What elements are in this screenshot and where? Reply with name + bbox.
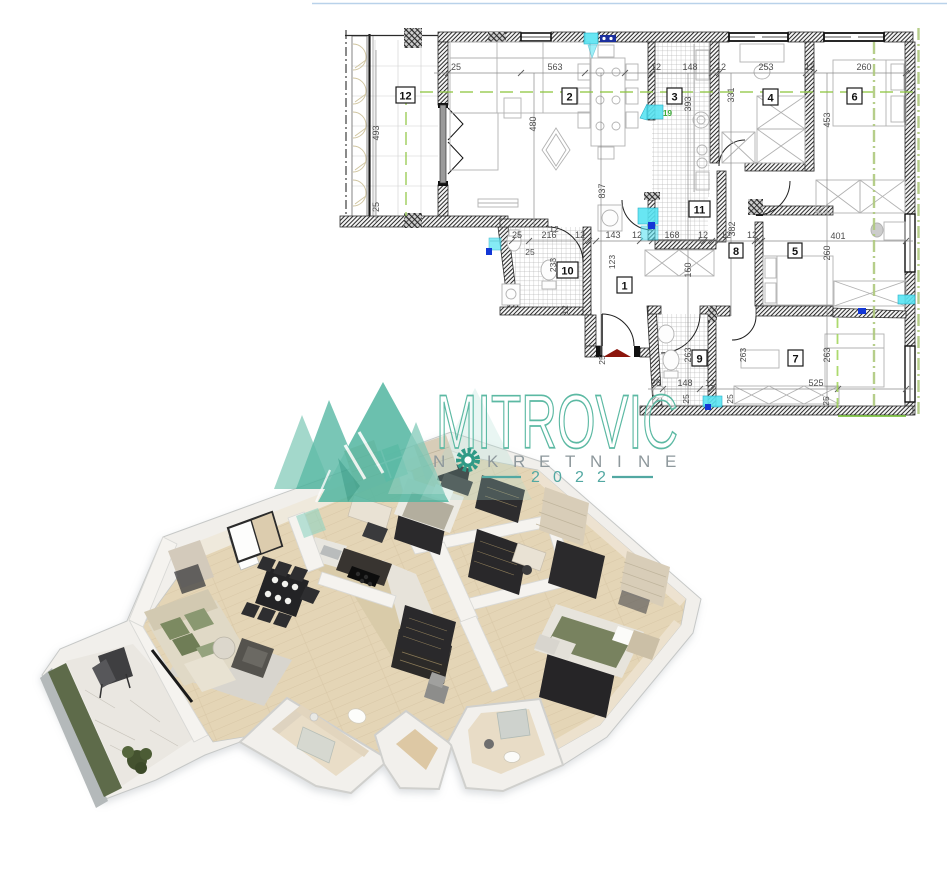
svg-text:I: I — [617, 452, 622, 471]
svg-text:K: K — [487, 452, 499, 471]
svg-text:2: 2 — [566, 92, 572, 104]
svg-text:393: 393 — [683, 96, 693, 111]
svg-text:5: 5 — [792, 246, 798, 258]
svg-text:10: 10 — [561, 266, 573, 278]
svg-text:12: 12 — [575, 230, 585, 240]
svg-text:253: 253 — [758, 62, 773, 72]
svg-text:260: 260 — [822, 245, 832, 260]
svg-text:7: 7 — [792, 354, 798, 366]
svg-text:168: 168 — [664, 230, 679, 240]
svg-text:N: N — [433, 452, 445, 471]
svg-text:401: 401 — [830, 231, 845, 241]
svg-text:E: E — [665, 452, 676, 471]
svg-text:2: 2 — [531, 469, 540, 486]
svg-text:148: 148 — [677, 378, 692, 388]
svg-text:T: T — [565, 452, 575, 471]
svg-text:12: 12 — [747, 230, 757, 240]
svg-text:260: 260 — [856, 62, 871, 72]
svg-text:12: 12 — [705, 378, 715, 388]
svg-text:25: 25 — [681, 394, 691, 404]
svg-text:453: 453 — [822, 112, 832, 127]
svg-text:2: 2 — [575, 469, 584, 486]
svg-text:480: 480 — [528, 116, 538, 131]
svg-text:525: 525 — [808, 378, 823, 388]
svg-text:3: 3 — [671, 92, 677, 104]
svg-text:160: 160 — [683, 262, 693, 277]
svg-text:12: 12 — [399, 91, 411, 103]
svg-text:331: 331 — [726, 87, 736, 102]
svg-text:25: 25 — [725, 394, 735, 404]
svg-text:E: E — [539, 452, 550, 471]
svg-text:9: 9 — [696, 354, 702, 366]
svg-text:2: 2 — [597, 469, 606, 486]
svg-text:11: 11 — [694, 205, 706, 217]
svg-text:25: 25 — [451, 62, 461, 72]
svg-text:25: 25 — [371, 202, 381, 212]
svg-text:12: 12 — [698, 230, 708, 240]
svg-text:N: N — [638, 452, 650, 471]
svg-text:25: 25 — [512, 230, 522, 240]
svg-text:563: 563 — [547, 62, 562, 72]
svg-text:25: 25 — [597, 355, 607, 365]
svg-text:12: 12 — [560, 305, 570, 315]
svg-text:123: 123 — [607, 255, 617, 269]
svg-text:12: 12 — [716, 62, 726, 72]
svg-text:12: 12 — [651, 62, 661, 72]
svg-text:1: 1 — [621, 281, 627, 293]
svg-text:263: 263 — [738, 348, 748, 362]
svg-text:382: 382 — [727, 221, 737, 236]
svg-text:6: 6 — [851, 92, 857, 104]
svg-text:148: 148 — [682, 62, 697, 72]
svg-text:19: 19 — [663, 109, 672, 118]
svg-text:4: 4 — [767, 93, 774, 105]
svg-text:0: 0 — [553, 469, 562, 486]
svg-text:12: 12 — [632, 230, 642, 240]
svg-text:263: 263 — [822, 347, 832, 362]
svg-text:25: 25 — [525, 247, 535, 257]
svg-text:R: R — [513, 452, 525, 471]
svg-text:837: 837 — [597, 183, 607, 198]
svg-text:493: 493 — [371, 125, 381, 140]
svg-text:8: 8 — [733, 246, 739, 258]
svg-text:12: 12 — [805, 62, 815, 72]
svg-text:12: 12 — [549, 224, 559, 234]
svg-text:25: 25 — [821, 396, 831, 406]
svg-text:143: 143 — [605, 230, 620, 240]
